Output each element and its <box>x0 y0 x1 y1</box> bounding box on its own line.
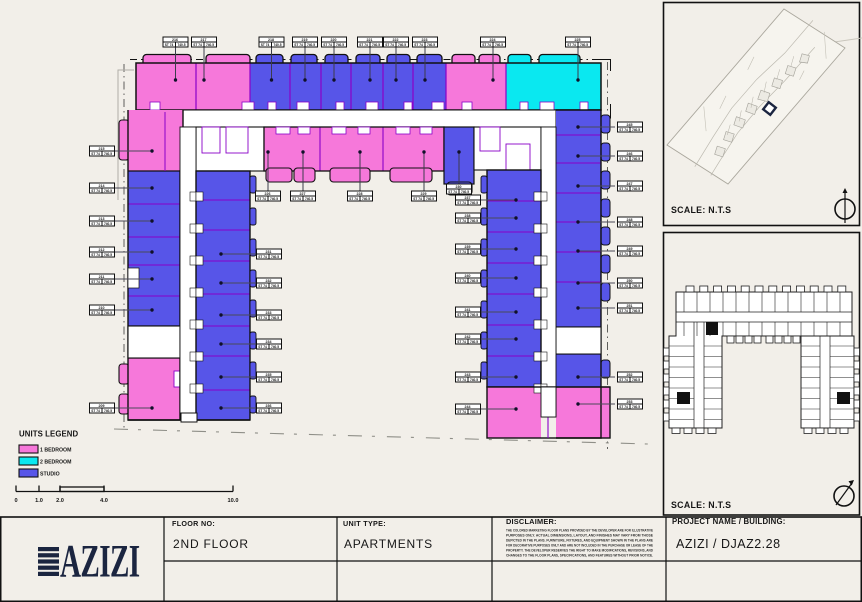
svg-text:253: 253 <box>627 400 633 404</box>
svg-text:740.5: 740.5 <box>470 340 478 344</box>
svg-text:740.5: 740.5 <box>206 43 214 47</box>
svg-text:ST 74: ST 74 <box>349 197 358 201</box>
svg-text:ST 74: ST 74 <box>257 197 266 201</box>
svg-text:ST 74: ST 74 <box>91 280 100 284</box>
svg-text:232: 232 <box>266 279 272 283</box>
svg-text:740.5: 740.5 <box>104 311 112 315</box>
svg-text:PROPERTY. THE DEVELOPER RESERV: PROPERTY. THE DEVELOPER RESERVES THE RIG… <box>506 549 653 553</box>
svg-text:242: 242 <box>465 335 471 339</box>
svg-text:740.5: 740.5 <box>307 43 315 47</box>
svg-text:740.5: 740.5 <box>271 284 279 288</box>
svg-text:740.5: 740.5 <box>104 189 112 193</box>
svg-text:740.5: 740.5 <box>495 43 503 47</box>
svg-text:740.5: 740.5 <box>104 222 112 226</box>
svg-text:4.0: 4.0 <box>100 498 108 504</box>
svg-text:248: 248 <box>627 218 633 222</box>
svg-text:ST 74: ST 74 <box>323 43 332 47</box>
svg-text:229: 229 <box>421 192 427 196</box>
svg-text:ST 74: ST 74 <box>619 252 628 256</box>
svg-text:ST 74: ST 74 <box>619 284 628 288</box>
svg-text:740.5: 740.5 <box>270 197 278 201</box>
svg-text:ST 74: ST 74 <box>91 253 100 257</box>
svg-text:233: 233 <box>266 311 272 315</box>
svg-text:228: 228 <box>357 192 363 196</box>
svg-text:ST 74: ST 74 <box>448 190 457 194</box>
svg-text:740.5: 740.5 <box>398 43 406 47</box>
svg-text:THE COLORED MARKETING FLOOR PL: THE COLORED MARKETING FLOOR PLANS PROVID… <box>506 529 653 533</box>
svg-text:ST 74: ST 74 <box>619 187 628 191</box>
svg-text:740.5: 740.5 <box>632 252 640 256</box>
svg-text:ST 74: ST 74 <box>619 405 628 409</box>
svg-text:213: 213 <box>99 217 105 221</box>
svg-text:740.5: 740.5 <box>461 190 469 194</box>
svg-text:740.5: 740.5 <box>271 409 279 413</box>
svg-text:740.5: 740.5 <box>104 152 112 156</box>
svg-text:10.0: 10.0 <box>228 498 239 504</box>
svg-text:ST 74: ST 74 <box>414 43 423 47</box>
svg-text:UNITS LEGEND: UNITS LEGEND <box>19 430 79 439</box>
svg-text:240: 240 <box>465 274 471 278</box>
svg-text:216: 216 <box>172 38 178 42</box>
svg-text:244: 244 <box>465 405 471 409</box>
svg-text:AZIZI: AZIZI <box>60 536 139 588</box>
svg-text:740.5: 740.5 <box>271 378 279 382</box>
svg-text:ST 74: ST 74 <box>359 43 368 47</box>
svg-text:ST 74: ST 74 <box>457 313 466 317</box>
svg-text:ST 74: ST 74 <box>619 157 628 161</box>
svg-text:ST 74: ST 74 <box>457 279 466 283</box>
svg-text:740.5: 740.5 <box>632 128 640 132</box>
svg-text:ST 74: ST 74 <box>91 189 100 193</box>
svg-text:ST 74: ST 74 <box>457 201 466 205</box>
svg-text:209: 209 <box>99 404 105 408</box>
svg-text:ST 74: ST 74 <box>619 378 628 382</box>
svg-text:DISCLAIMER:: DISCLAIMER: <box>506 517 557 526</box>
svg-text:ST 74: ST 74 <box>258 255 267 259</box>
svg-text:740.5: 740.5 <box>104 409 112 413</box>
svg-text:247: 247 <box>627 182 633 186</box>
svg-text:210: 210 <box>99 306 105 310</box>
svg-text:ST 74: ST 74 <box>91 311 100 315</box>
svg-text:250: 250 <box>627 279 633 283</box>
svg-text:740.5: 740.5 <box>470 313 478 317</box>
svg-text:251: 251 <box>627 304 633 308</box>
svg-text:PURPOSES ONLY. ACTUAL DIMENSIO: PURPOSES ONLY. ACTUAL DIMENSIONS, LAYOUT… <box>506 534 654 538</box>
svg-text:740.5: 740.5 <box>372 43 380 47</box>
svg-text:226: 226 <box>265 192 271 196</box>
svg-text:PROJECT NAME / BUILDING:: PROJECT NAME / BUILDING: <box>672 517 786 526</box>
svg-text:214: 214 <box>99 184 105 188</box>
svg-text:740.5: 740.5 <box>632 309 640 313</box>
svg-text:740.5: 740.5 <box>271 255 279 259</box>
svg-text:252: 252 <box>627 373 633 377</box>
svg-text:740.5: 740.5 <box>470 250 478 254</box>
svg-text:740.5: 740.5 <box>632 223 640 227</box>
svg-text:ST 74: ST 74 <box>193 43 202 47</box>
svg-text:ST 74: ST 74 <box>91 222 100 226</box>
svg-text:ST 74: ST 74 <box>567 43 576 47</box>
svg-text:ST 74: ST 74 <box>91 409 100 413</box>
svg-text:ST 74: ST 74 <box>619 309 628 313</box>
svg-text:740.5: 740.5 <box>470 378 478 382</box>
svg-text:740.5: 740.5 <box>580 43 588 47</box>
svg-text:245: 245 <box>627 123 633 127</box>
svg-text:740.5: 740.5 <box>470 201 478 205</box>
svg-text:243: 243 <box>465 373 471 377</box>
svg-text:ST 74: ST 74 <box>165 43 174 47</box>
svg-text:217: 217 <box>201 38 207 42</box>
svg-text:740.5: 740.5 <box>632 405 640 409</box>
svg-text:0: 0 <box>14 498 17 504</box>
svg-text:740.5: 740.5 <box>426 197 434 201</box>
svg-text:ST 74: ST 74 <box>457 250 466 254</box>
svg-text:DEPICTED IN THE PLANS. FURNITU: DEPICTED IN THE PLANS. FURNITURE, FIXTUR… <box>506 539 654 543</box>
svg-text:ST 74: ST 74 <box>619 128 628 132</box>
svg-text:224: 224 <box>490 38 496 42</box>
svg-text:ST 74: ST 74 <box>258 345 267 349</box>
svg-text:UNIT TYPE:: UNIT TYPE: <box>343 519 386 528</box>
svg-text:2ND FLOOR: 2ND FLOOR <box>173 537 249 551</box>
svg-text:ST 74: ST 74 <box>294 43 303 47</box>
svg-text:ST 74: ST 74 <box>457 410 466 414</box>
svg-text:740.5: 740.5 <box>470 279 478 283</box>
svg-text:740.5: 740.5 <box>427 43 435 47</box>
svg-text:1 BEDROOM: 1 BEDROOM <box>40 448 71 454</box>
svg-text:220: 220 <box>331 38 337 42</box>
svg-text:ST 74: ST 74 <box>91 152 100 156</box>
svg-text:ST 74: ST 74 <box>292 197 301 201</box>
svg-text:ST 74: ST 74 <box>457 219 466 223</box>
svg-text:CHANGES TO THE FLOOR PLANS, SP: CHANGES TO THE FLOOR PLANS, SPECIFICATIO… <box>506 554 653 558</box>
svg-text:249: 249 <box>627 247 633 251</box>
svg-text:219: 219 <box>302 38 308 42</box>
svg-text:740.5: 740.5 <box>632 284 640 288</box>
svg-text:225: 225 <box>575 38 581 42</box>
svg-text:239: 239 <box>465 245 471 249</box>
svg-text:230: 230 <box>456 185 462 189</box>
svg-text:222: 222 <box>393 38 399 42</box>
svg-text:ST 74: ST 74 <box>619 223 628 227</box>
svg-text:740.5: 740.5 <box>271 316 279 320</box>
svg-text:237: 237 <box>465 196 471 200</box>
svg-text:740.5: 740.5 <box>104 280 112 284</box>
svg-text:ST 74: ST 74 <box>258 284 267 288</box>
svg-text:2.0: 2.0 <box>56 498 64 504</box>
svg-text:2 BEDROOM: 2 BEDROOM <box>40 460 71 466</box>
svg-text:740.5: 740.5 <box>632 187 640 191</box>
svg-text:227: 227 <box>300 192 306 196</box>
svg-text:740.5: 740.5 <box>336 43 344 47</box>
svg-text:218: 218 <box>268 38 274 42</box>
svg-text:740.5: 740.5 <box>271 345 279 349</box>
svg-text:241: 241 <box>465 308 471 312</box>
svg-text:STUDIO: STUDIO <box>40 472 60 478</box>
svg-text:ST 74: ST 74 <box>258 316 267 320</box>
svg-text:211: 211 <box>99 275 105 279</box>
svg-text:215: 215 <box>99 147 105 151</box>
svg-text:740.5: 740.5 <box>104 253 112 257</box>
svg-text:740.5: 740.5 <box>305 197 313 201</box>
svg-text:ST 74: ST 74 <box>258 378 267 382</box>
svg-text:740.5: 740.5 <box>362 197 370 201</box>
svg-text:231: 231 <box>266 250 272 254</box>
svg-text:740.5: 740.5 <box>632 157 640 161</box>
svg-text:221: 221 <box>367 38 373 42</box>
svg-text:ST 74: ST 74 <box>457 378 466 382</box>
svg-text:APARTMENTS: APARTMENTS <box>344 537 433 551</box>
svg-text:235: 235 <box>266 373 272 377</box>
svg-text:ST 74: ST 74 <box>482 43 491 47</box>
svg-text:ST 74: ST 74 <box>413 197 422 201</box>
svg-text:236: 236 <box>266 404 272 408</box>
svg-text:SCALE: N.T.S: SCALE: N.T.S <box>671 205 731 215</box>
svg-text:246: 246 <box>627 152 633 156</box>
svg-text:SCALE: N.T.S: SCALE: N.T.S <box>671 500 731 510</box>
svg-text:223: 223 <box>422 38 428 42</box>
svg-text:FOR DECORATIVE PURPOSES ONLY A: FOR DECORATIVE PURPOSES ONLY AND ARE NOT… <box>506 544 653 548</box>
svg-text:238: 238 <box>465 214 471 218</box>
svg-text:740.5: 740.5 <box>178 43 186 47</box>
svg-text:ST 74: ST 74 <box>385 43 394 47</box>
svg-text:212: 212 <box>99 248 105 252</box>
svg-text:FLOOR NO:: FLOOR NO: <box>172 519 215 528</box>
svg-text:740.5: 740.5 <box>470 219 478 223</box>
svg-text:1.0: 1.0 <box>35 498 43 504</box>
svg-text:740.5: 740.5 <box>470 410 478 414</box>
svg-text:740.5: 740.5 <box>632 378 640 382</box>
svg-text:ST 74: ST 74 <box>258 409 267 413</box>
svg-text:AZIZI / DJAZ2.28: AZIZI / DJAZ2.28 <box>676 537 781 551</box>
svg-text:740.5: 740.5 <box>274 43 282 47</box>
svg-text:234: 234 <box>266 340 272 344</box>
svg-text:ST 74: ST 74 <box>261 43 270 47</box>
svg-text:ST 74: ST 74 <box>457 340 466 344</box>
